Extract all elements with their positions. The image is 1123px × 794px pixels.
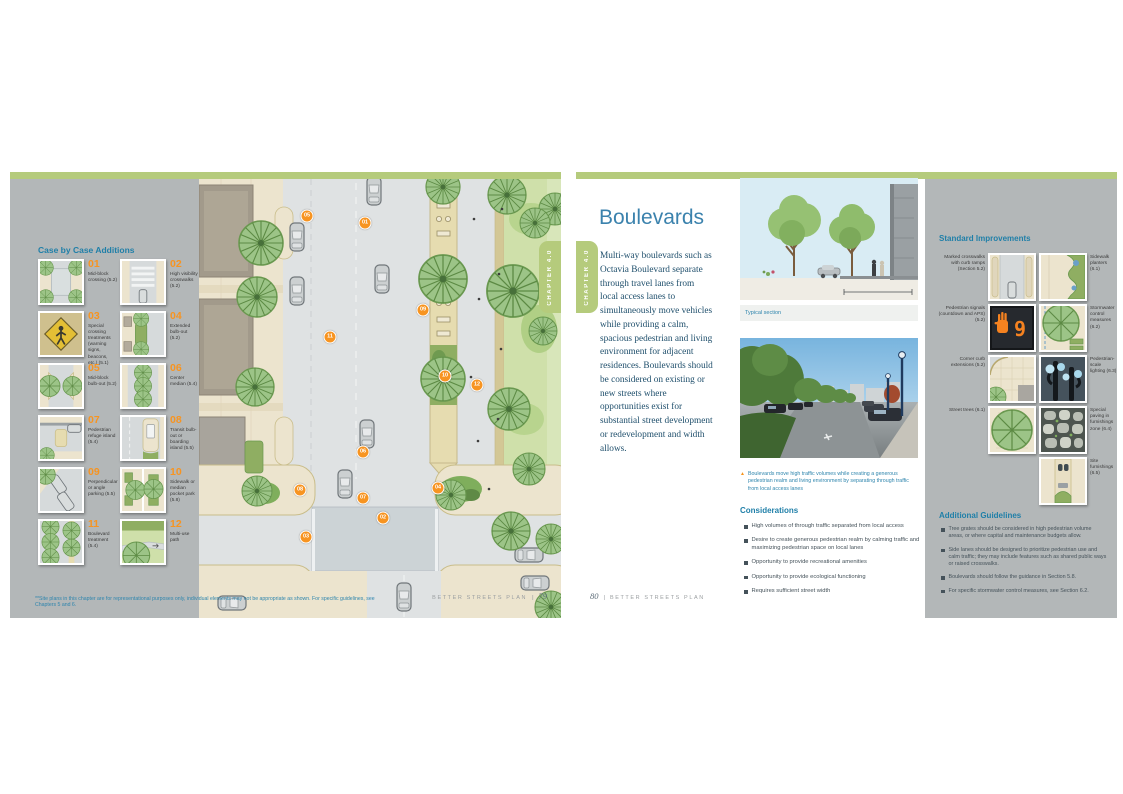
section-caption: Typical section [740, 305, 918, 321]
legend-item: 06Center median (5.4) [120, 363, 198, 415]
legend-item-label: Mid-block bulb-out (5.2) [88, 376, 118, 388]
plan-marker-04: 04 [432, 482, 445, 495]
page-title: Boulevards [599, 206, 704, 230]
legend-item-number: 04 [170, 311, 198, 322]
legend-item: 10Sidewalk or median pocket park (5.8) [120, 467, 198, 519]
guidelines-heading: Additional Guidelines [939, 511, 1021, 520]
improvement-label: Special paving in furnishings zone (6.4) [1090, 408, 1117, 433]
legend-item-text: 10Sidewalk or median pocket park (5.8) [170, 467, 198, 504]
legend-thumb-transit [120, 415, 166, 461]
guideline-item-text: Tree grates should be considered in high… [949, 526, 1108, 541]
legend-thumb-midblock [38, 363, 84, 409]
legend-item-label: Center median (5.4) [170, 376, 198, 388]
legend-item-text: 03Special crossing treatments (warning s… [88, 311, 118, 367]
photo-caption-text: Boulevards move high traffic volumes whi… [748, 471, 912, 493]
improvement-thumb-s_planter [1039, 253, 1087, 301]
legend-title: Case by Case Additions [38, 245, 135, 255]
legend-item-label: Mid-block crossing (5.2) [88, 272, 118, 284]
caption-arrow-icon: ▲ [740, 471, 745, 493]
legend-item: 03Special crossing treatments (warning s… [38, 311, 120, 363]
legend-item-label: Sidewalk or median pocket park (5.8) [170, 480, 198, 505]
legend-item-label: Transit bulb-out or boarding island (5.5… [170, 428, 198, 453]
bullet-icon [941, 549, 945, 553]
document-spread: Case by Case Additions 01Mid-block cross… [0, 0, 1123, 794]
bullet-icon [941, 590, 945, 594]
bullet-icon [744, 525, 748, 529]
legend-item-number: 02 [170, 259, 198, 270]
legend-item-text: 01Mid-block crossing (5.2) [88, 259, 118, 284]
legend-thumb-path [120, 519, 166, 565]
consideration-item: High volumes of through traffic separate… [744, 523, 930, 531]
guideline-item: For specific stormwater control measures… [941, 588, 1107, 595]
legend-item-number: 08 [170, 415, 198, 426]
consideration-item: Opportunity to provide ecological functi… [744, 574, 930, 582]
improvements-heading: Standard Improvements [939, 234, 1031, 243]
bullet-icon [941, 528, 945, 532]
bullet-icon [744, 590, 748, 594]
page-footer: BETTER STREETS PLAN|79 [432, 591, 547, 601]
guideline-item: Boulevards should follow the guidance in… [941, 574, 1107, 581]
legend-item-text: 09Perpendicular or angle parking (5.5) [88, 467, 118, 498]
site-plan-figure: 050111091012060702080304 [199, 179, 561, 618]
consideration-item: Desire to create generous pedestrian rea… [744, 537, 930, 553]
legend-item: 05Mid-block bulb-out (5.2) [38, 363, 120, 415]
improvement-thumb-s_cross [988, 253, 1036, 301]
legend-item-label: Special crossing treatments (warning sig… [88, 324, 118, 368]
standard-improvements-panel: Standard Improvements Additional Guideli… [925, 179, 1117, 618]
consideration-item-text: High volumes of through traffic separate… [752, 523, 904, 531]
footer-divider: | [604, 595, 605, 601]
chapter-tab-label: CHAPTER 4.0 [547, 249, 553, 306]
legend-item-number: 01 [88, 259, 118, 270]
page-left: Case by Case Additions 01Mid-block cross… [10, 172, 561, 620]
plan-marker-05: 05 [301, 210, 314, 223]
improvement-item: Special paving in furnishings zone (6.4) [1039, 406, 1117, 454]
legend-item: 08Transit bulb-out or boarding island (5… [120, 415, 198, 467]
improvement-label: Pedestrian-scale lighting (6.3) [1090, 357, 1117, 376]
improvement-item: Sidewalk planters (6.1) [1039, 253, 1117, 301]
improvement-thumb-s_storm [1039, 304, 1087, 352]
legend-item-number: 06 [170, 363, 198, 374]
legend-thumb-parking [38, 467, 84, 513]
bullet-icon [744, 539, 748, 543]
improvement-item: Site furnishings (6.5) [1039, 457, 1117, 505]
improvement-label: Corner curb extensions (5.2) [938, 357, 985, 369]
legend-item: 02High visibility crosswalks (5.2) [120, 259, 198, 311]
legend-item-text: 12Multi-use path [170, 519, 198, 544]
footnote: **Site plans in this chapter are for rep… [35, 596, 385, 608]
photo-caption: ▲ Boulevards move high traffic volumes w… [740, 471, 912, 493]
consideration-item: Requires sufficient street width [744, 588, 930, 596]
improvement-thumb-s_corner [988, 355, 1036, 403]
plan-marker-03: 03 [300, 531, 313, 544]
guideline-item-text: Side lanes should be designed to priorit… [949, 547, 1108, 569]
legend-thumb-bulbout [120, 311, 166, 357]
guidelines-list: Tree grates should be considered in high… [941, 526, 1107, 595]
guideline-item: Side lanes should be designed to priorit… [941, 547, 1107, 569]
legend-item-number: 12 [170, 519, 198, 530]
legend-item: 12Multi-use path [120, 519, 198, 571]
legend-item-label: Pedestrian refuge island (5.4) [88, 428, 118, 447]
legend-thumb-boulevard [38, 519, 84, 565]
bullet-icon [744, 561, 748, 565]
improvement-thumb-s_paving [1039, 406, 1087, 454]
plan-marker-08: 08 [294, 484, 307, 497]
considerations-list: High volumes of through traffic separate… [744, 523, 930, 596]
guideline-item-text: For specific stormwater control measures… [949, 588, 1089, 595]
legend-item-label: High visibility crosswalks (5.2) [170, 272, 198, 291]
legend-thumb-pocketpark [120, 467, 166, 513]
plan-marker-06: 06 [357, 446, 370, 459]
svg-text:9: 9 [1014, 317, 1026, 341]
legend-thumb-crosswalk [120, 259, 166, 305]
improvement-label: Sidewalk planters (6.1) [1090, 255, 1117, 274]
plan-marker-07: 07 [357, 492, 370, 505]
page-right: CHAPTER 4.0 Boulevards Multi-way bouleva… [576, 172, 1117, 620]
legend-panel: Case by Case Additions 01Mid-block cross… [10, 179, 199, 618]
chapter-tab: CHAPTER 4.0 [539, 241, 561, 313]
improvement-item: Corner curb extensions (5.2) [935, 355, 1036, 403]
bullet-icon [941, 576, 945, 580]
top-accent-bar [10, 172, 561, 179]
page-number: 79 [539, 591, 548, 601]
consideration-item-text: Desire to create generous pedestrian rea… [752, 537, 931, 553]
consideration-item-text: Opportunity to provide ecological functi… [752, 574, 866, 582]
page-number: 80 [590, 591, 599, 601]
plan-marker-12: 12 [471, 379, 484, 392]
plan-marker-02: 02 [377, 512, 390, 525]
footer-brand: BETTER STREETS PLAN [432, 595, 527, 601]
legend-thumb-refuge [38, 415, 84, 461]
footer-divider: | [532, 595, 533, 601]
improvement-label: Pedestrian signals (countdown and APS) (… [938, 306, 985, 325]
plan-marker-10: 10 [439, 370, 452, 383]
intro-paragraph: Multi-way boulevards such as Octavia Bou… [600, 250, 714, 456]
improvement-item: Stormwater control measures (6.2) [1039, 304, 1117, 352]
legend-item-text: 07Pedestrian refuge island (5.4) [88, 415, 118, 446]
improvement-label: Street trees (6.1) [938, 408, 985, 414]
plan-marker-09: 09 [417, 304, 430, 317]
improvement-thumb-s_signal: 9 [988, 304, 1036, 352]
plan-marker-01: 01 [359, 217, 372, 230]
consideration-item-text: Requires sufficient street width [752, 588, 831, 596]
legend-item-label: Extended bulb-out (5.2) [170, 324, 198, 343]
legend-item: 04Extended bulb-out (5.2) [120, 311, 198, 363]
legend-item-number: 10 [170, 467, 198, 478]
considerations-heading: Considerations [740, 506, 798, 515]
footer-brand: BETTER STREETS PLAN [610, 595, 705, 601]
guideline-item: Tree grates should be considered in high… [941, 526, 1107, 541]
page-footer: 80|BETTER STREETS PLAN [590, 591, 705, 601]
legend-item-number: 07 [88, 415, 118, 426]
improvement-label: Marked crosswalks with curb ramps (Secti… [938, 255, 985, 274]
legend-item: 11Boulevard treatment (5.4) [38, 519, 120, 571]
legend-item-text: 02High visibility crosswalks (5.2) [170, 259, 198, 290]
improvement-thumb-s_light [1039, 355, 1087, 403]
legend-item-text: 06Center median (5.4) [170, 363, 198, 388]
legend-grid: 01Mid-block crossing (5.2)02High visibil… [38, 259, 198, 571]
improvement-item: Pedestrian signals (countdown and APS) (… [935, 304, 1036, 352]
legend-item-text: 08Transit bulb-out or boarding island (5… [170, 415, 198, 452]
legend-item-number: 03 [88, 311, 118, 322]
chapter-tab-label: CHAPTER 4.0 [584, 249, 590, 306]
improvement-item: Marked crosswalks with curb ramps (Secti… [935, 253, 1036, 301]
guideline-item-text: Boulevards should follow the guidance in… [949, 574, 1077, 581]
legend-thumb-crossing [38, 259, 84, 305]
legend-item-number: 09 [88, 467, 118, 478]
bullet-icon [744, 576, 748, 580]
improvement-item: Street trees (6.1) [935, 406, 1036, 454]
legend-item-number: 11 [88, 519, 118, 530]
consideration-item: Opportunity to provide recreational amen… [744, 559, 930, 567]
improvement-label: Stormwater control measures (6.2) [1090, 306, 1117, 331]
legend-thumb-median [120, 363, 166, 409]
legend-item-text: 04Extended bulb-out (5.2) [170, 311, 198, 342]
improvement-thumb-s_furn [1039, 457, 1087, 505]
legend-item-text: 05Mid-block bulb-out (5.2) [88, 363, 118, 388]
improvement-thumb-s_tree [988, 406, 1036, 454]
typical-section-figure [740, 178, 918, 300]
legend-thumb-warning [38, 311, 84, 357]
legend-item: 09Perpendicular or angle parking (5.5) [38, 467, 120, 519]
improvement-label: Site furnishings (6.5) [1090, 459, 1117, 478]
plan-marker-11: 11 [324, 331, 337, 344]
legend-item-label: Multi-use path [170, 532, 198, 544]
boulevard-photo-image [740, 338, 918, 458]
legend-item: 01Mid-block crossing (5.2) [38, 259, 120, 311]
improvement-item: Pedestrian-scale lighting (6.3) [1039, 355, 1117, 403]
legend-item: 07Pedestrian refuge island (5.4) [38, 415, 120, 467]
boulevard-photo [740, 338, 918, 463]
legend-item-text: 11Boulevard treatment (5.4) [88, 519, 118, 550]
consideration-item-text: Opportunity to provide recreational amen… [752, 559, 867, 567]
plan-marker-layer: 050111091012060702080304 [199, 179, 561, 618]
legend-item-number: 05 [88, 363, 118, 374]
chapter-tab: CHAPTER 4.0 [576, 241, 598, 313]
figures-column: Typical section [740, 178, 918, 493]
legend-item-label: Boulevard treatment (5.4) [88, 532, 118, 551]
legend-item-label: Perpendicular or angle parking (5.5) [88, 480, 118, 499]
